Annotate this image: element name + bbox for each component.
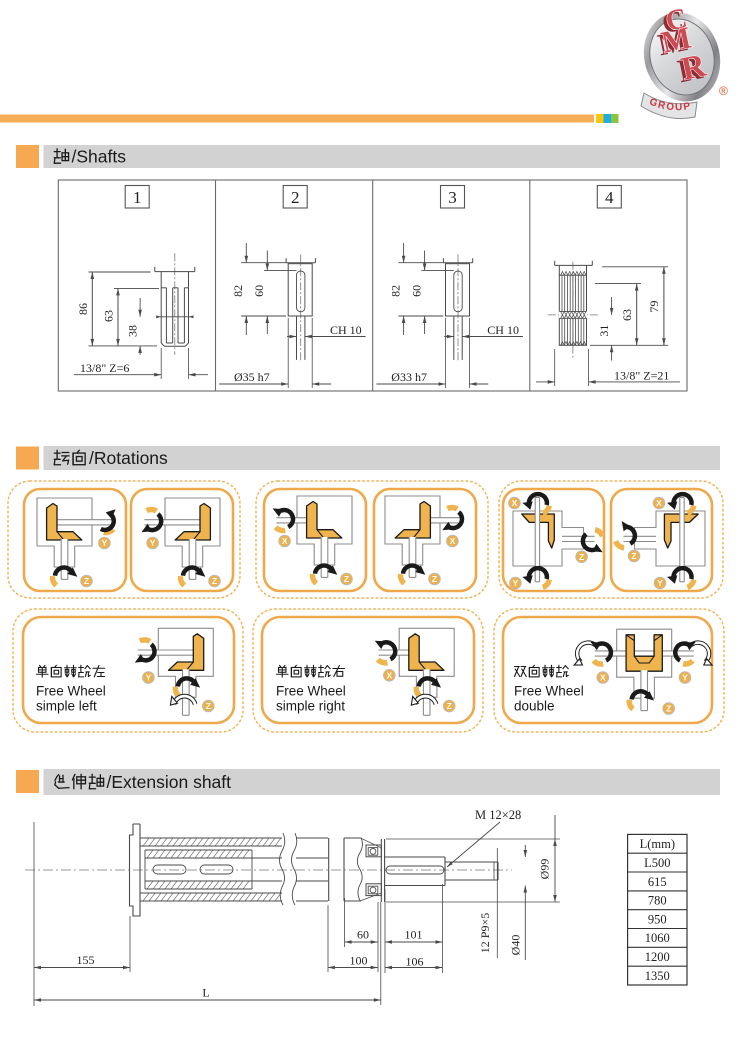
svg-text:Y: Y — [657, 578, 663, 588]
svg-text:38: 38 — [126, 325, 140, 337]
svg-text:Y: Y — [513, 578, 519, 588]
svg-text:Z: Z — [206, 701, 211, 711]
svg-text:CH 10: CH 10 — [330, 323, 362, 337]
svg-text:4: 4 — [605, 188, 614, 207]
svg-text:Z: Z — [432, 574, 437, 584]
svg-text:Z: Z — [84, 576, 89, 586]
svg-text:simple right: simple right — [276, 699, 345, 714]
svg-text:1060: 1060 — [645, 931, 670, 945]
svg-text:X: X — [282, 536, 288, 546]
svg-text:X: X — [512, 498, 518, 508]
svg-text:60: 60 — [409, 285, 423, 297]
svg-text:86: 86 — [76, 303, 90, 315]
svg-text:1200: 1200 — [645, 950, 670, 964]
svg-text:/Rotations: /Rotations — [89, 448, 168, 468]
svg-text:/Shafts: /Shafts — [72, 147, 127, 167]
svg-text:double: double — [514, 699, 555, 714]
svg-text:Y: Y — [146, 673, 152, 683]
svg-text:Z: Z — [579, 552, 584, 562]
svg-text:60: 60 — [252, 285, 266, 297]
svg-text:Free Wheel: Free Wheel — [514, 684, 584, 699]
svg-text:Free Wheel: Free Wheel — [276, 684, 346, 699]
svg-text:Z: Z — [212, 576, 217, 586]
svg-text:63: 63 — [620, 309, 634, 321]
svg-text:L500: L500 — [644, 856, 670, 870]
svg-text:Ø33 h7: Ø33 h7 — [391, 370, 427, 384]
svg-text:Z: Z — [344, 574, 349, 584]
svg-text:Z: Z — [631, 551, 636, 561]
svg-text:60: 60 — [357, 928, 369, 942]
svg-text:79: 79 — [647, 301, 661, 313]
svg-text:63: 63 — [102, 310, 116, 322]
svg-text:1350: 1350 — [645, 969, 670, 983]
svg-text:Y: Y — [150, 538, 156, 548]
svg-text:Ø99: Ø99 — [538, 859, 552, 880]
svg-text:106: 106 — [406, 955, 424, 969]
svg-text:L(mm): L(mm) — [640, 837, 675, 851]
svg-text:13/8" Z=6: 13/8" Z=6 — [80, 361, 129, 375]
svg-text:3: 3 — [448, 188, 457, 207]
svg-text:M 12×28: M 12×28 — [475, 808, 521, 822]
svg-text:615: 615 — [648, 875, 667, 889]
svg-text:155: 155 — [77, 953, 95, 967]
svg-text:101: 101 — [405, 928, 423, 942]
svg-text:Z: Z — [447, 701, 452, 711]
svg-text:Y: Y — [102, 538, 108, 548]
svg-text:L: L — [202, 986, 209, 1000]
svg-text:simple left: simple left — [36, 699, 97, 714]
svg-text:X: X — [656, 498, 662, 508]
svg-text:X: X — [386, 671, 392, 681]
svg-text:Ø35 h7: Ø35 h7 — [234, 370, 270, 384]
svg-text:®: ® — [719, 84, 728, 98]
svg-text:Z: Z — [666, 704, 671, 714]
svg-text:/Extension shaft: /Extension shaft — [107, 772, 232, 792]
svg-text:X: X — [600, 673, 606, 683]
svg-text:13/8" Z=21: 13/8" Z=21 — [614, 369, 669, 383]
svg-text:Free Wheel: Free Wheel — [36, 684, 106, 699]
svg-text:Y: Y — [682, 673, 688, 683]
svg-text:950: 950 — [648, 912, 667, 926]
svg-text:X: X — [450, 536, 456, 546]
svg-text:31: 31 — [597, 325, 611, 337]
svg-text:82: 82 — [388, 285, 402, 297]
svg-text:12 P9×5: 12 P9×5 — [478, 913, 492, 953]
svg-text:Ø40: Ø40 — [509, 935, 523, 956]
svg-text:1: 1 — [133, 188, 142, 207]
svg-text:CH 10: CH 10 — [487, 323, 519, 337]
svg-text:2: 2 — [291, 188, 300, 207]
svg-text:100: 100 — [350, 954, 368, 968]
svg-text:82: 82 — [231, 285, 245, 297]
svg-text:780: 780 — [648, 894, 667, 908]
